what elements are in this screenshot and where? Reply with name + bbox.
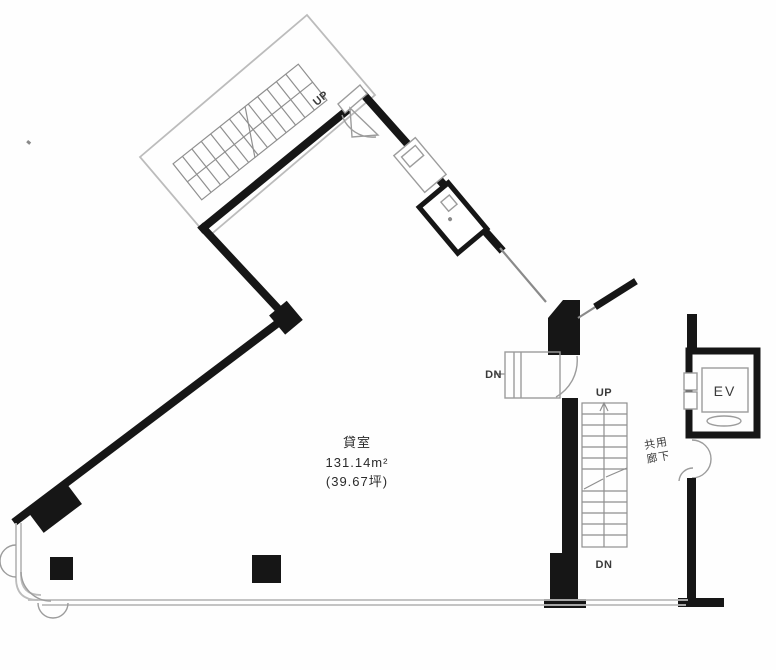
dn-label-right-stairs: DN <box>596 559 613 571</box>
stairs-break-line-a <box>584 479 603 489</box>
elevator-counterweight <box>707 416 741 426</box>
stair-break-line <box>226 107 273 158</box>
stray-mark <box>26 140 31 145</box>
door-leaf <box>350 108 378 137</box>
corridor-label-line1: 共用 <box>643 435 669 452</box>
exterior-stair-block: UP <box>140 15 375 237</box>
corridor-wall-stub <box>598 283 633 305</box>
up-label-top: UP <box>311 89 331 109</box>
column-bottom-middle <box>252 555 281 583</box>
unit-label-block: 貸室 131.14m² (39.67坪) <box>326 435 389 489</box>
corridor-wall-lower <box>687 478 696 600</box>
corridor-and-elevator: EV 共用 廊下 <box>643 314 757 607</box>
column-bottom-left <box>50 557 73 580</box>
entrance-zone: DN <box>485 283 633 398</box>
entry-step-box <box>505 352 560 398</box>
utility-room-2-outline <box>419 183 487 253</box>
up-label-right-stairs: UP <box>596 387 612 399</box>
left-staircase <box>173 64 327 200</box>
elevator-door-panel-1 <box>684 373 697 390</box>
floor-plan: UP DN <box>0 0 776 670</box>
corridor-door-arc <box>692 440 711 478</box>
elevator-label: EV <box>714 383 737 399</box>
entrance-door-arc <box>556 356 577 397</box>
wall-lower-left-diagonal <box>17 320 282 520</box>
stair-left-wall <box>562 398 578 554</box>
elevator-door-panel-2 <box>684 392 697 409</box>
columns <box>29 301 303 583</box>
utility-room-2 <box>419 183 487 253</box>
window-upper-right <box>500 248 546 302</box>
wall-mid-diagonal <box>203 228 284 315</box>
corridor-wall-upper <box>687 314 697 352</box>
unit-name-label: 貸室 <box>343 435 371 450</box>
stair-bottom-column <box>550 553 578 602</box>
left-door-arc <box>0 545 16 577</box>
dn-label-entry: DN <box>485 369 502 381</box>
floor-plan-page: UP DN <box>0 0 776 670</box>
unit-area-m2: 131.14m² <box>326 455 389 470</box>
unit-area-tsubo: (39.67坪) <box>326 474 388 489</box>
right-staircase: UP DN <box>544 387 627 608</box>
corridor-label: 共用 廊下 <box>643 435 671 466</box>
